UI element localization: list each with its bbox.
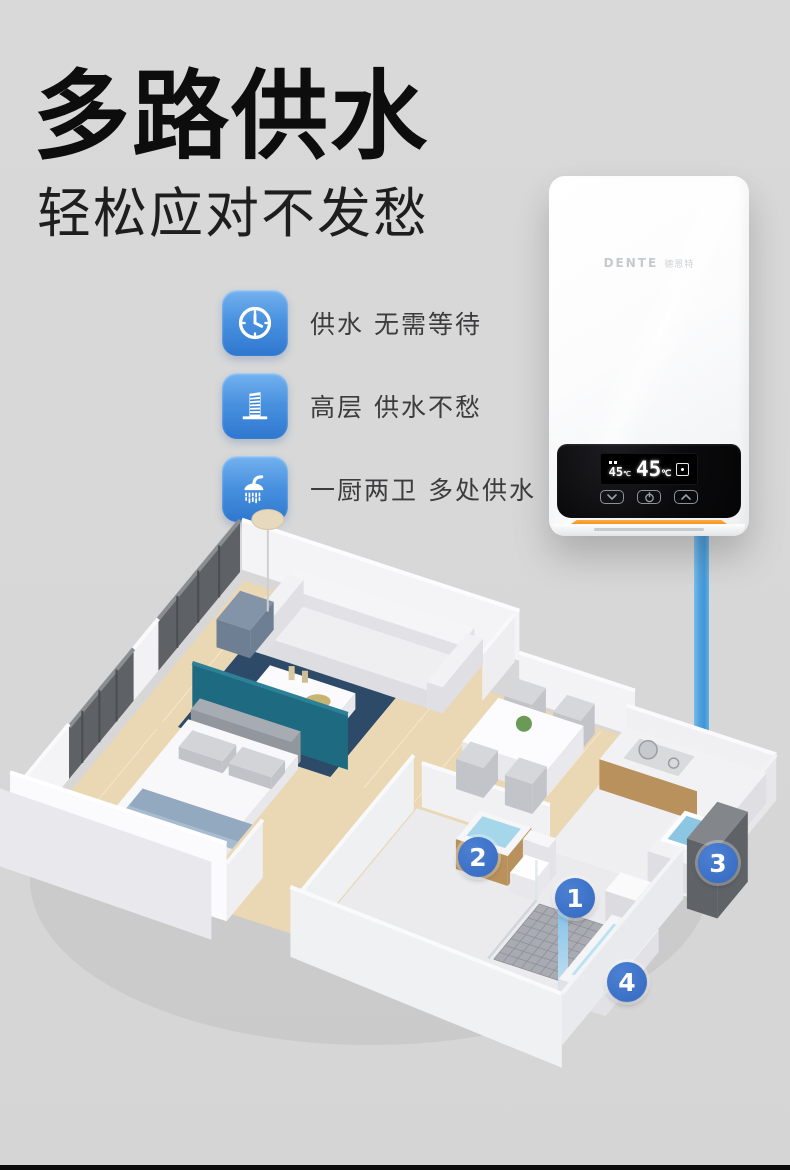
supply-marker-shower: 1 [555, 878, 595, 918]
water-heater: DENTE 德恩特 45℃ 45℃ [549, 176, 749, 536]
table-plant [516, 716, 532, 732]
mode-indicator-dots [609, 461, 617, 464]
heater-control-panel: 45℃ 45℃ [557, 444, 741, 518]
heater-bottom-lip [553, 524, 745, 536]
floor-lamp [252, 510, 284, 530]
timer-icon [676, 463, 689, 476]
power-icon [644, 492, 655, 503]
temp-up-button[interactable] [674, 490, 698, 504]
chevron-up-icon [680, 493, 692, 501]
temp-down-button[interactable] [600, 490, 624, 504]
supply-marker-kitchen-sink: 3 [698, 843, 738, 883]
supply-marker-basin: 2 [458, 837, 498, 877]
chevron-down-icon [606, 493, 618, 501]
page-divider-bar [0, 1165, 790, 1170]
set-temperature: 45℃ [609, 466, 631, 478]
power-button[interactable] [637, 490, 661, 504]
brand-logo: DENTE 德恩特 [549, 256, 749, 270]
candle [302, 671, 308, 683]
current-temperature: 45℃ [636, 459, 671, 480]
sofa-arm [427, 682, 443, 713]
candle [289, 666, 295, 680]
cooking-pot [639, 741, 657, 759]
supply-marker-bathtub: 4 [607, 962, 647, 1002]
heater-display: 45℃ 45℃ [600, 453, 698, 485]
